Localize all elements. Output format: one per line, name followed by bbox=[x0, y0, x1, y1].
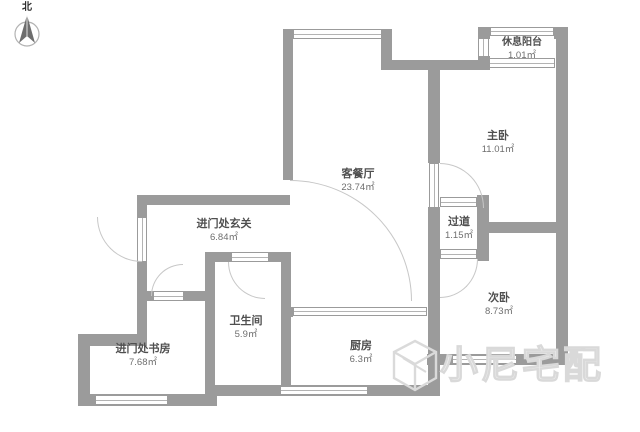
floorplan-canvas: 客餐厅 23.74㎡ 休息阳台 1.01㎡ 主卧 11.01㎡ 过道 1.15㎡… bbox=[0, 0, 640, 432]
window-marker bbox=[280, 386, 368, 395]
wall-segment bbox=[428, 60, 440, 163]
watermark-cube-logo-icon bbox=[390, 338, 440, 394]
room-name: 进门处玄关 bbox=[197, 217, 252, 231]
door-opening-marker bbox=[429, 163, 439, 208]
door-arc bbox=[290, 180, 412, 301]
room-label-master-bedroom: 主卧 11.01㎡ bbox=[482, 129, 515, 156]
compass: 北 bbox=[8, 2, 46, 54]
room-label-bathroom: 卫生间 5.9㎡ bbox=[230, 314, 263, 341]
wall-segment bbox=[281, 307, 293, 317]
room-area: 11.01㎡ bbox=[482, 143, 515, 156]
door-arc bbox=[228, 262, 265, 299]
room-area: 5.9㎡ bbox=[230, 328, 263, 341]
wall-segment bbox=[283, 29, 293, 180]
compass-north-label: 北 bbox=[8, 2, 46, 13]
room-label-kitchen: 厨房 6.3㎡ bbox=[350, 339, 373, 366]
room-name: 厨房 bbox=[350, 339, 373, 353]
window-marker bbox=[95, 395, 168, 405]
watermark: 小尼宅配 bbox=[390, 338, 604, 394]
room-name: 休息阳台 bbox=[502, 36, 542, 49]
room-area: 6.3㎡ bbox=[350, 353, 373, 366]
window-marker bbox=[293, 29, 383, 39]
door-arc bbox=[97, 217, 142, 262]
watermark-text: 小尼宅配 bbox=[440, 338, 604, 394]
door-arc bbox=[151, 264, 183, 296]
room-name: 卫生间 bbox=[230, 314, 263, 328]
door-opening-marker bbox=[293, 307, 427, 316]
room-name: 客餐厅 bbox=[341, 167, 374, 181]
wall-segment bbox=[483, 222, 556, 233]
wall-segment bbox=[269, 252, 291, 262]
room-label-living-dining: 客餐厅 23.74㎡ bbox=[341, 167, 374, 194]
room-area: 7.68㎡ bbox=[116, 356, 171, 369]
door-arc bbox=[440, 163, 484, 208]
room-label-hallway: 过道 1.15㎡ bbox=[445, 215, 473, 242]
wall-segment bbox=[137, 195, 290, 205]
room-name: 过道 bbox=[445, 215, 473, 229]
room-label-second-bedroom: 次卧 8.73㎡ bbox=[485, 291, 513, 318]
room-name: 次卧 bbox=[485, 291, 513, 305]
room-name: 进门处书房 bbox=[116, 342, 171, 356]
room-area: 23.74㎡ bbox=[341, 181, 374, 194]
window-marker bbox=[478, 38, 489, 57]
room-area: 1.15㎡ bbox=[445, 229, 473, 242]
wall-segment bbox=[556, 27, 568, 365]
door-opening-marker bbox=[231, 252, 269, 262]
door-arc bbox=[440, 259, 478, 298]
wall-segment bbox=[205, 252, 215, 406]
room-name: 主卧 bbox=[482, 129, 515, 143]
room-label-entry-study: 进门处书房 7.68㎡ bbox=[116, 342, 171, 369]
north-arrow-icon bbox=[9, 13, 45, 49]
wall-segment bbox=[205, 252, 231, 262]
room-area: 1.01㎡ bbox=[502, 49, 542, 62]
window-marker bbox=[490, 27, 554, 36]
door-opening-marker bbox=[440, 249, 477, 259]
room-label-rest-balcony: 休息阳台 1.01㎡ bbox=[502, 36, 542, 62]
room-label-entry-foyer: 进门处玄关 6.84㎡ bbox=[197, 217, 252, 244]
room-area: 6.84㎡ bbox=[197, 231, 252, 244]
room-area: 8.73㎡ bbox=[485, 305, 513, 318]
